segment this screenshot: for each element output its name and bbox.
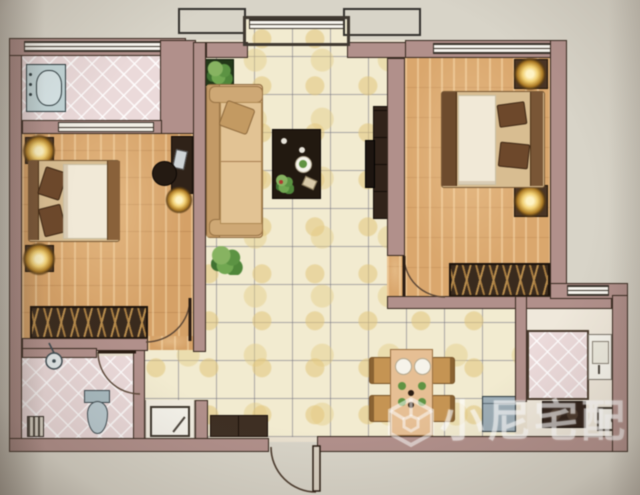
shower-arm	[49, 343, 54, 353]
door-arc-bathroom	[98, 352, 140, 394]
door-leaf-entrance	[313, 446, 320, 491]
door-arc-entrance	[271, 447, 316, 492]
door-arc-bedroom-right	[404, 256, 445, 297]
floor-plan-photo: 小尼宅配	[0, 0, 640, 495]
door-arc-bedroom-left	[146, 298, 190, 342]
shower-head-center	[52, 359, 56, 363]
watermark-text: 小尼宅配	[440, 396, 628, 448]
watermark: 小尼宅配	[386, 396, 628, 448]
floor-plan: 小尼宅配	[0, 0, 640, 495]
cube-logo-icon	[386, 396, 436, 448]
